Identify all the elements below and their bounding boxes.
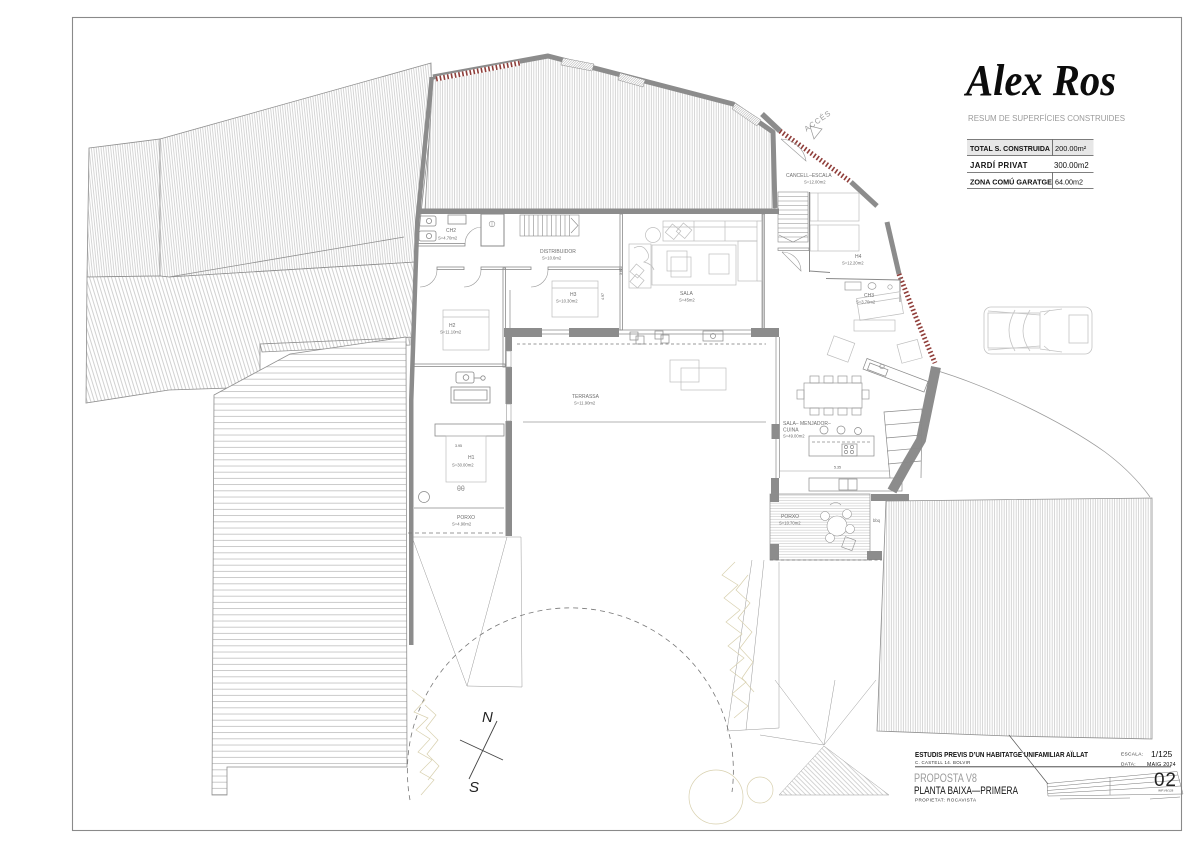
svg-text:S=10.70m2: S=10.70m2 — [779, 521, 801, 526]
svg-text:S=3.70m2: S=3.70m2 — [856, 300, 876, 305]
svg-text:CANCELL–ESCALA: CANCELL–ESCALA — [786, 173, 832, 179]
svg-text:SALA– MENJADOR–: SALA– MENJADOR– — [783, 421, 831, 427]
svg-text:N: N — [482, 709, 493, 726]
svg-text:PORXO: PORXO — [781, 514, 799, 520]
svg-text:RESUM DE SUPERFÍCIES CONSTRUID: RESUM DE SUPERFÍCIES CONSTRUIDES — [968, 113, 1125, 123]
svg-text:CH3: CH3 — [864, 293, 874, 299]
svg-text:ZONA COMÚ GARATGE: ZONA COMÚ GARATGE — [970, 178, 1052, 187]
svg-text:SALA: SALA — [680, 291, 693, 297]
svg-text:3.95: 3.95 — [455, 444, 462, 448]
svg-text:S=10.6m2: S=10.6m2 — [542, 256, 562, 261]
svg-text:4.97: 4.97 — [601, 293, 605, 300]
svg-text:ESCALA:: ESCALA: — [1121, 752, 1143, 758]
svg-text:Alex Ros: Alex Ros — [963, 56, 1116, 105]
svg-text:1/125: 1/125 — [1151, 749, 1173, 759]
svg-text:S=4.70m2: S=4.70m2 — [438, 236, 458, 241]
svg-text:H3: H3 — [570, 292, 577, 298]
svg-text:S=12.00m2: S=12.00m2 — [804, 180, 826, 185]
svg-text:C. CASTELL 14. BOLVIR: C. CASTELL 14. BOLVIR — [915, 760, 971, 765]
svg-text:DISTRIBUIDOR: DISTRIBUIDOR — [540, 249, 576, 255]
svg-text:H1: H1 — [468, 455, 475, 461]
svg-text:3.87: 3.87 — [619, 268, 623, 275]
svg-text:S=12.20m2: S=12.20m2 — [842, 261, 864, 266]
svg-text:ESTUDIS PREVIS D’UN HABITAT: ESTUDIS PREVIS D’UN HABITATGE UNIFAMILIA… — [915, 750, 1088, 759]
svg-text:64.00m2: 64.00m2 — [1055, 178, 1083, 187]
svg-text:TOTAL S. CONSTRUIDA: TOTAL S. CONSTRUIDA — [970, 144, 1050, 153]
svg-text:ROCAVISTA: ROCAVISTA — [947, 798, 977, 803]
svg-text:S=11.10m2: S=11.10m2 — [440, 330, 462, 335]
svg-text:θθ: θθ — [457, 486, 465, 493]
svg-text:S=30.00m2: S=30.00m2 — [452, 463, 474, 468]
svg-text:PLANTA BAIXA—PRIMERA: PLANTA BAIXA—PRIMERA — [914, 785, 1018, 797]
svg-text:S: S — [469, 779, 479, 796]
svg-text:5.35: 5.35 — [834, 466, 841, 470]
svg-text:PROPOSTA V8: PROPOSTA V8 — [914, 773, 977, 785]
svg-text:H2: H2 — [449, 323, 456, 329]
svg-text:CH2: CH2 — [446, 228, 456, 234]
svg-text:bbq: bbq — [873, 518, 881, 523]
svg-text:PORXO: PORXO — [457, 515, 475, 521]
svg-text:MAIG 2024: MAIG 2024 — [1147, 762, 1176, 768]
svg-text:S=45m2: S=45m2 — [679, 298, 695, 303]
svg-text:300.00m2: 300.00m2 — [1054, 161, 1089, 170]
svg-text:PROPIETAT:: PROPIETAT: — [915, 798, 945, 803]
svg-text:JARDÍ PRIVAT: JARDÍ PRIVAT — [970, 161, 1028, 170]
svg-text:DATA:: DATA: — [1121, 762, 1136, 768]
svg-text:S=10.30m2: S=10.30m2 — [556, 299, 578, 304]
svg-text:TERRASSA: TERRASSA — [572, 394, 600, 400]
svg-text:200.00m²: 200.00m² — [1055, 144, 1087, 153]
svg-text:H4: H4 — [855, 254, 862, 260]
svg-text:S=11.90m2: S=11.90m2 — [574, 401, 596, 406]
svg-text:IMP.V8/128: IMP.V8/128 — [1158, 789, 1174, 793]
svg-text:S=49.00m2: S=49.00m2 — [783, 434, 805, 439]
svg-text:S=4.90m2: S=4.90m2 — [452, 522, 472, 527]
